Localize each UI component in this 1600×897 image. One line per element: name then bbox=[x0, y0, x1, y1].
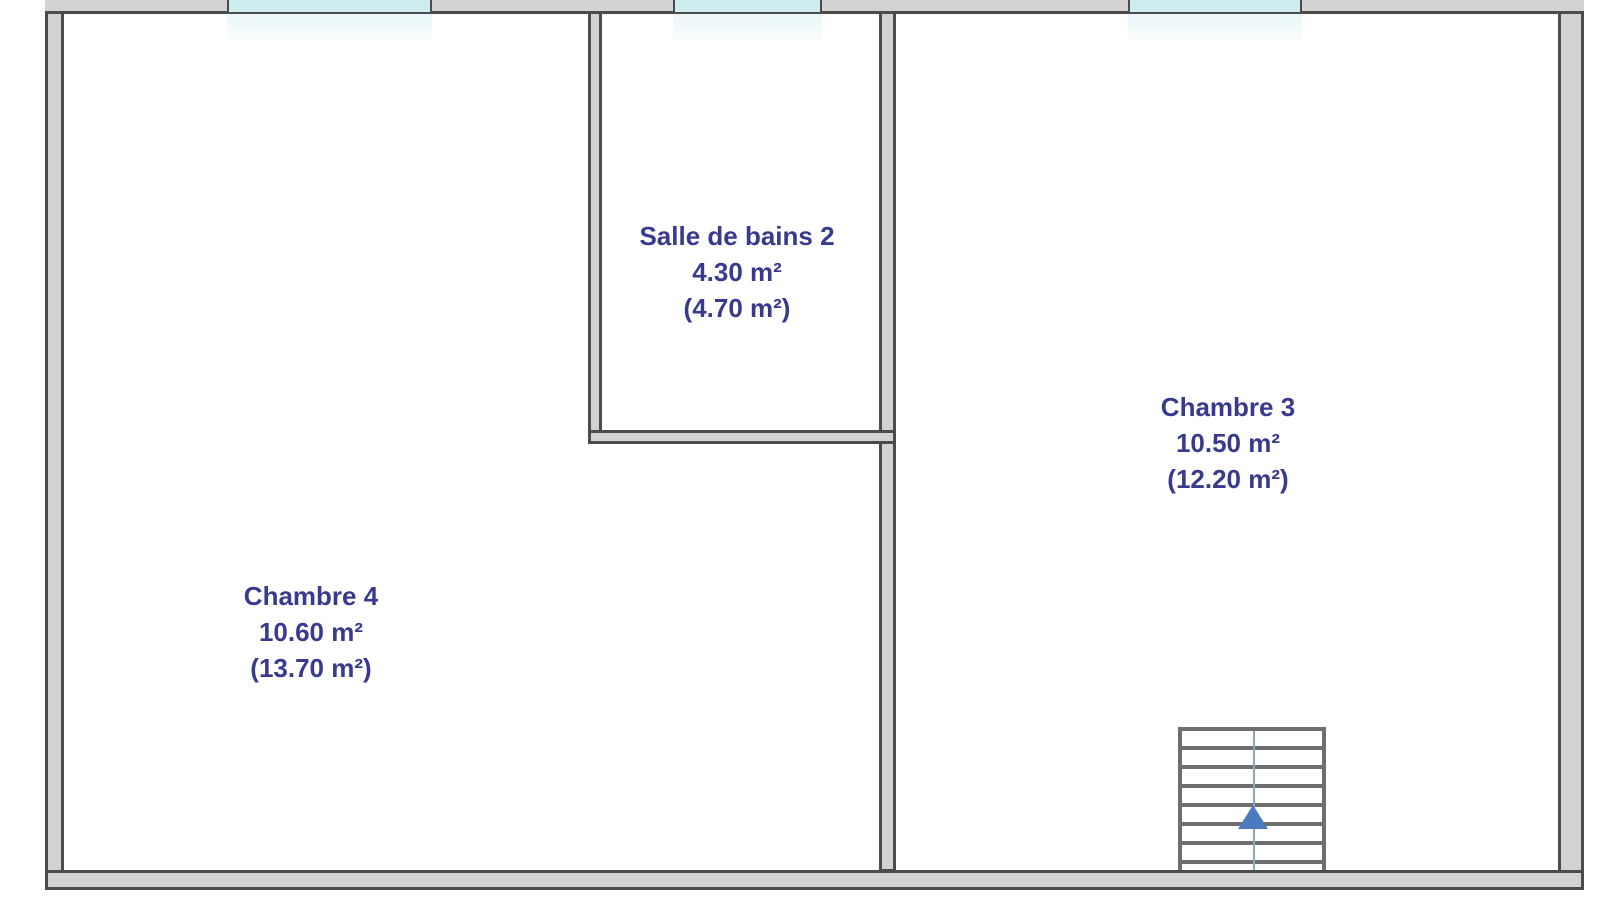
window-1 bbox=[227, 0, 432, 14]
room-area-net: 10.50 m² bbox=[1078, 425, 1378, 461]
window-light-glow bbox=[673, 14, 822, 44]
outer-wall-right bbox=[1558, 0, 1584, 890]
outer-wall-bottom bbox=[45, 870, 1584, 890]
room-name: Salle de bains 2 bbox=[587, 218, 887, 254]
room-area-gross: (12.20 m²) bbox=[1078, 461, 1378, 497]
window-light-glow bbox=[1128, 14, 1302, 44]
room-area-gross: (4.70 m²) bbox=[587, 290, 887, 326]
room-label-chambre-3: Chambre 3 10.50 m² (12.20 m²) bbox=[1078, 389, 1378, 497]
room-name: Chambre 4 bbox=[161, 578, 461, 614]
stair-center-line bbox=[1253, 731, 1255, 870]
room-label-chambre-4: Chambre 4 10.60 m² (13.70 m²) bbox=[161, 578, 461, 686]
room-area-net: 10.60 m² bbox=[161, 614, 461, 650]
room-name: Chambre 3 bbox=[1078, 389, 1378, 425]
window-2 bbox=[673, 0, 822, 14]
room-label-salle-de-bains-2: Salle de bains 2 4.30 m² (4.70 m²) bbox=[587, 218, 887, 326]
window-light-glow bbox=[227, 14, 432, 44]
room-area-gross: (13.70 m²) bbox=[161, 650, 461, 686]
stair-up-arrow-icon bbox=[1238, 805, 1268, 829]
outer-wall-left bbox=[45, 0, 64, 890]
window-3 bbox=[1128, 0, 1302, 14]
room-area-net: 4.30 m² bbox=[587, 254, 887, 290]
bathroom-bottom-wall bbox=[588, 430, 896, 444]
staircase bbox=[1178, 727, 1326, 870]
floor-plan: Salle de bains 2 4.30 m² (4.70 m²) Chamb… bbox=[0, 0, 1600, 897]
